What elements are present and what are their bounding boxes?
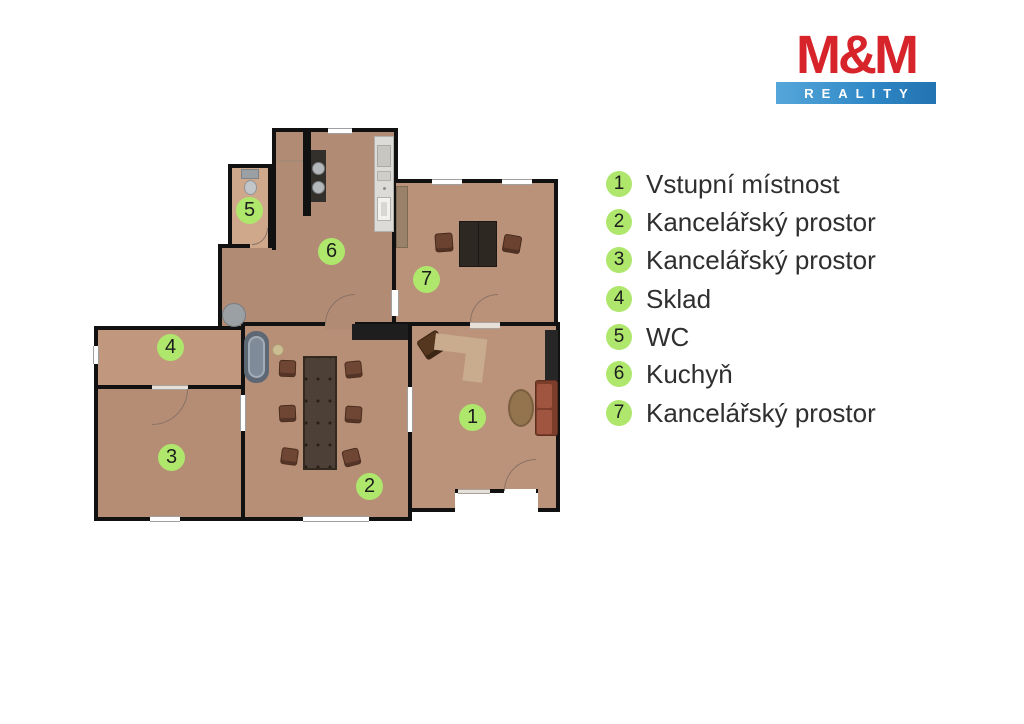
chair-icon xyxy=(344,405,362,423)
toilet-icon xyxy=(241,169,259,179)
plan-badge-4: 4 xyxy=(157,334,184,361)
sink-icon xyxy=(377,197,391,221)
toilet-bowl-icon xyxy=(244,180,257,195)
logo-tagline-text: REALITY xyxy=(796,86,916,101)
chair-icon xyxy=(279,360,297,378)
chair-icon xyxy=(280,447,299,466)
sofa-icon xyxy=(535,380,558,436)
legend-label-4: Sklad xyxy=(646,284,711,315)
legend-label-7: Kancelářský prostor xyxy=(646,398,876,429)
room1-chimney-column xyxy=(545,330,558,380)
chair-icon xyxy=(344,360,363,379)
legend-label-6: Kuchyň xyxy=(646,359,733,390)
opening-room6-room7 xyxy=(391,290,399,316)
room3-bottom-window xyxy=(150,516,180,522)
legend-item-5: 5 WC xyxy=(606,318,689,356)
legend-badge-6: 6 xyxy=(606,361,632,387)
legend-item-6: 6 Kuchyň xyxy=(606,355,733,393)
plan-badge-6: 6 xyxy=(318,238,345,265)
chair-icon xyxy=(434,232,453,252)
legend-item-7: 7 Kancelářský prostor xyxy=(606,394,876,432)
fridge-icon xyxy=(377,145,391,167)
bathtub-icon xyxy=(244,331,269,383)
opening-room3-room2 xyxy=(240,395,246,431)
kitchen-counter-icon xyxy=(374,136,394,232)
plan-badge-5: 5 xyxy=(236,197,263,224)
cabinet-icon xyxy=(396,186,408,248)
room2-bottom-window xyxy=(303,516,369,522)
plan-badge-3: 3 xyxy=(158,444,185,471)
bar-stool-icon xyxy=(312,162,325,175)
plan-badge-2: 2 xyxy=(356,473,383,500)
legend-badge-5: 5 xyxy=(606,324,632,350)
wall-lamp-icon xyxy=(272,344,284,356)
legend-item-4: 4 Sklad xyxy=(606,280,711,318)
mm-reality-logo: M&M REALITY xyxy=(776,26,936,104)
sofa-cushion xyxy=(537,410,552,434)
round-chair-icon xyxy=(222,303,246,327)
legend-item-2: 2 Kancelářský prostor xyxy=(606,203,876,241)
plan-badge-1: 1 xyxy=(459,404,486,431)
bar-stool-icon xyxy=(312,181,325,194)
bar-counter-icon xyxy=(311,150,326,202)
sink-basin xyxy=(381,202,387,216)
bathtub-inner xyxy=(248,336,265,378)
room7-window-right xyxy=(502,179,532,185)
plan-badge-7: 7 xyxy=(413,266,440,293)
kitchen-closet-shelf-line xyxy=(278,160,303,162)
office-desk-icon xyxy=(459,221,497,267)
legend-badge-3: 3 xyxy=(606,247,632,273)
legend-badge-4: 4 xyxy=(606,286,632,312)
room4-side-window xyxy=(93,346,99,364)
legend-label-1: Vstupní místnost xyxy=(646,169,840,200)
legend-item-3: 3 Kancelářský prostor xyxy=(606,241,876,279)
legend-badge-1: 1 xyxy=(606,171,632,197)
conference-table-icon xyxy=(303,356,337,470)
logo-brand-text: M&M xyxy=(776,26,936,82)
legend-label-3: Kancelářský prostor xyxy=(646,245,876,276)
room-6-floor-join xyxy=(271,250,277,326)
legend-label-2: Kancelářský prostor xyxy=(646,207,876,238)
legend-badge-7: 7 xyxy=(606,400,632,426)
entrance-sidelight-window xyxy=(458,489,490,494)
room7-door-gap xyxy=(470,322,500,329)
opening-room2-room1 xyxy=(407,387,413,432)
stove-icon xyxy=(377,171,391,181)
sofa-cushion xyxy=(537,384,552,408)
room2-wall-chunk xyxy=(352,324,408,340)
counter-dot xyxy=(383,187,386,190)
chair-icon xyxy=(502,234,523,255)
legend-badge-2: 2 xyxy=(606,209,632,235)
chair-icon xyxy=(279,405,297,423)
floor-plan-page: 1 2 3 4 5 6 7 1 Vstupní místnost 2 Kance… xyxy=(0,0,1024,724)
kitchen-top-window xyxy=(328,128,352,134)
desk-seam xyxy=(478,222,479,266)
kitchen-partition-wall xyxy=(303,128,311,216)
logo-tagline-bar: REALITY xyxy=(776,82,936,104)
legend-item-1: 1 Vstupní místnost xyxy=(606,165,840,203)
room7-window-left xyxy=(432,179,462,185)
rug-icon xyxy=(508,389,534,427)
legend-label-5: WC xyxy=(646,322,689,353)
